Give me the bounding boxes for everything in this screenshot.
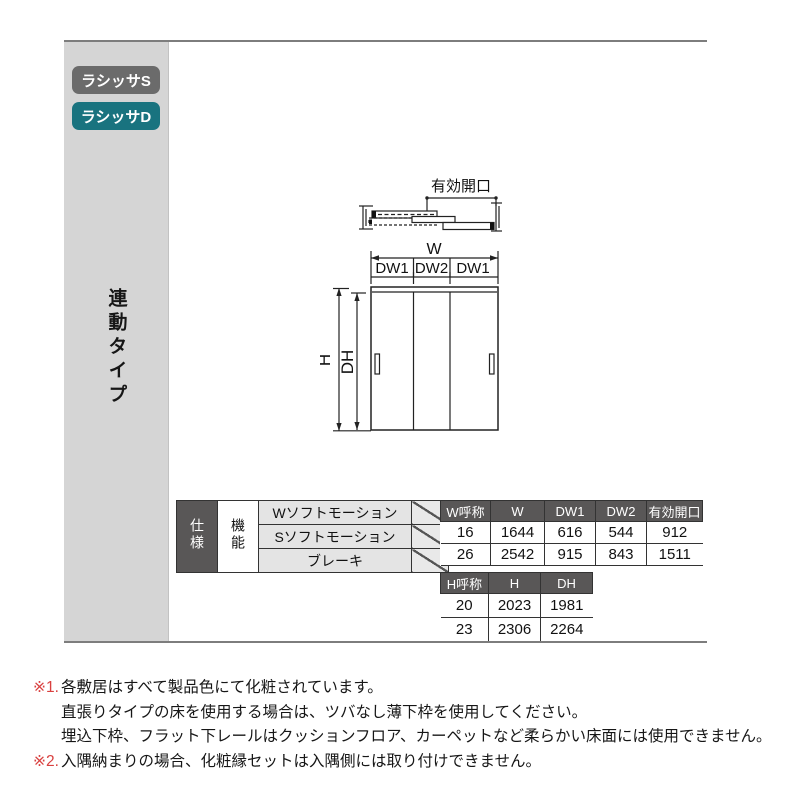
cell: 26	[441, 544, 491, 566]
door-handle-right	[490, 354, 495, 374]
col-header: W	[491, 501, 545, 522]
note-number: ※2.	[33, 750, 61, 775]
spec-function-brake: ブレーキ	[259, 549, 412, 573]
cell: 915	[545, 544, 596, 566]
note-line: 直張りタイプの床を使用する場合は、ツバなし薄下枠を使用してください。	[33, 701, 772, 726]
cell: 23	[441, 618, 489, 642]
badge-lasissa-s[interactable]: ラシッサS	[72, 66, 160, 94]
badge-lasissa-d[interactable]: ラシッサD	[72, 102, 160, 130]
door-handle-left	[375, 354, 380, 374]
table-row: 23 2306 2264	[441, 618, 593, 642]
cell: 2542	[491, 544, 545, 566]
cell: 2306	[489, 618, 541, 642]
door-diagram: 有効開口 W	[320, 168, 520, 448]
bottom-rule	[64, 641, 707, 643]
cell: 616	[545, 522, 596, 544]
note-text: 直張りタイプの床を使用する場合は、ツバなし薄下枠を使用してください。	[61, 701, 587, 726]
note-number	[33, 701, 61, 726]
cell: 2023	[489, 594, 541, 618]
spec-function-s-soft-motion: Sソフトモーション	[259, 525, 412, 549]
cell: 544	[596, 522, 647, 544]
cell: 1644	[491, 522, 545, 544]
cell: 843	[596, 544, 647, 566]
spec-function-w-soft-motion: Wソフトモーション	[259, 501, 412, 525]
cell: 2264	[541, 618, 593, 642]
spec-header-shiyou: 仕様	[177, 501, 218, 573]
elevation-view: W DW1 DW2 DW1 H DH	[320, 241, 498, 431]
spec-header-kinou: 機能	[218, 501, 259, 573]
cell: 16	[441, 522, 491, 544]
col-header: 有効開口	[647, 501, 703, 522]
table-row: 20 2023 1981	[441, 594, 593, 618]
col-header: H呼称	[441, 573, 489, 594]
dim-label-w: W	[426, 241, 442, 258]
note-text: 各敷居はすべて製品色にて化粧されています。	[61, 676, 383, 701]
col-header: DW1	[545, 501, 596, 522]
cell: 1511	[647, 544, 703, 566]
height-dimension-table: H呼称 H DH 20 2023 1981 23 2306 2264	[440, 572, 593, 642]
footnotes: ※1. 各敷居はすべて製品色にて化粧されています。 直張りタイプの床を使用する場…	[33, 676, 772, 774]
note-text: 入隅納まりの場合、化粧縁セットは入隅側には取り付けできません。	[61, 750, 541, 775]
note-line: ※1. 各敷居はすべて製品色にて化粧されています。	[33, 676, 772, 701]
table-header-row: H呼称 H DH	[441, 573, 593, 594]
width-dimension-table: W呼称 W DW1 DW2 有効開口 16 1644 616 544 912 2…	[440, 500, 703, 566]
note-line: 埋込下枠、フラット下レールはクッションフロア、カーペットなど柔らかい床面には使用…	[33, 725, 772, 750]
note-number: ※1.	[33, 676, 61, 701]
type-label: 連動タイプ	[103, 288, 130, 408]
col-header: DW2	[596, 501, 647, 522]
note-line: ※2. 入隅納まりの場合、化粧縁セットは入隅側には取り付けできません。	[33, 750, 772, 775]
col-header: H	[489, 573, 541, 594]
dim-label-dw1-right: DW1	[456, 260, 489, 277]
cell: 20	[441, 594, 489, 618]
col-header: DH	[541, 573, 593, 594]
effective-opening-label: 有効開口	[431, 178, 491, 195]
dim-label-dw1-left: DW1	[375, 260, 408, 277]
spec-row: 仕様 機能 Wソフトモーション	[177, 501, 449, 525]
note-number	[33, 725, 61, 750]
col-header: W呼称	[441, 501, 491, 522]
note-text: 埋込下枠、フラット下レールはクッションフロア、カーペットなど柔らかい床面には使用…	[61, 725, 772, 750]
side-strip: ラシッサS ラシッサD 連動タイプ	[64, 42, 169, 641]
plan-view: 有効開口	[359, 178, 502, 231]
table-row: 16 1644 616 544 912	[441, 522, 703, 544]
table-row: 26 2542 915 843 1511	[441, 544, 703, 566]
dim-label-dh: DH	[338, 350, 357, 375]
table-header-row: W呼称 W DW1 DW2 有効開口	[441, 501, 703, 522]
cell: 1981	[541, 594, 593, 618]
dim-label-h: H	[320, 354, 334, 366]
cell: 912	[647, 522, 703, 544]
spec-table: 仕様 機能 Wソフトモーション Sソフトモーション ブレーキ	[176, 500, 449, 573]
dim-label-dw2: DW2	[415, 260, 448, 277]
